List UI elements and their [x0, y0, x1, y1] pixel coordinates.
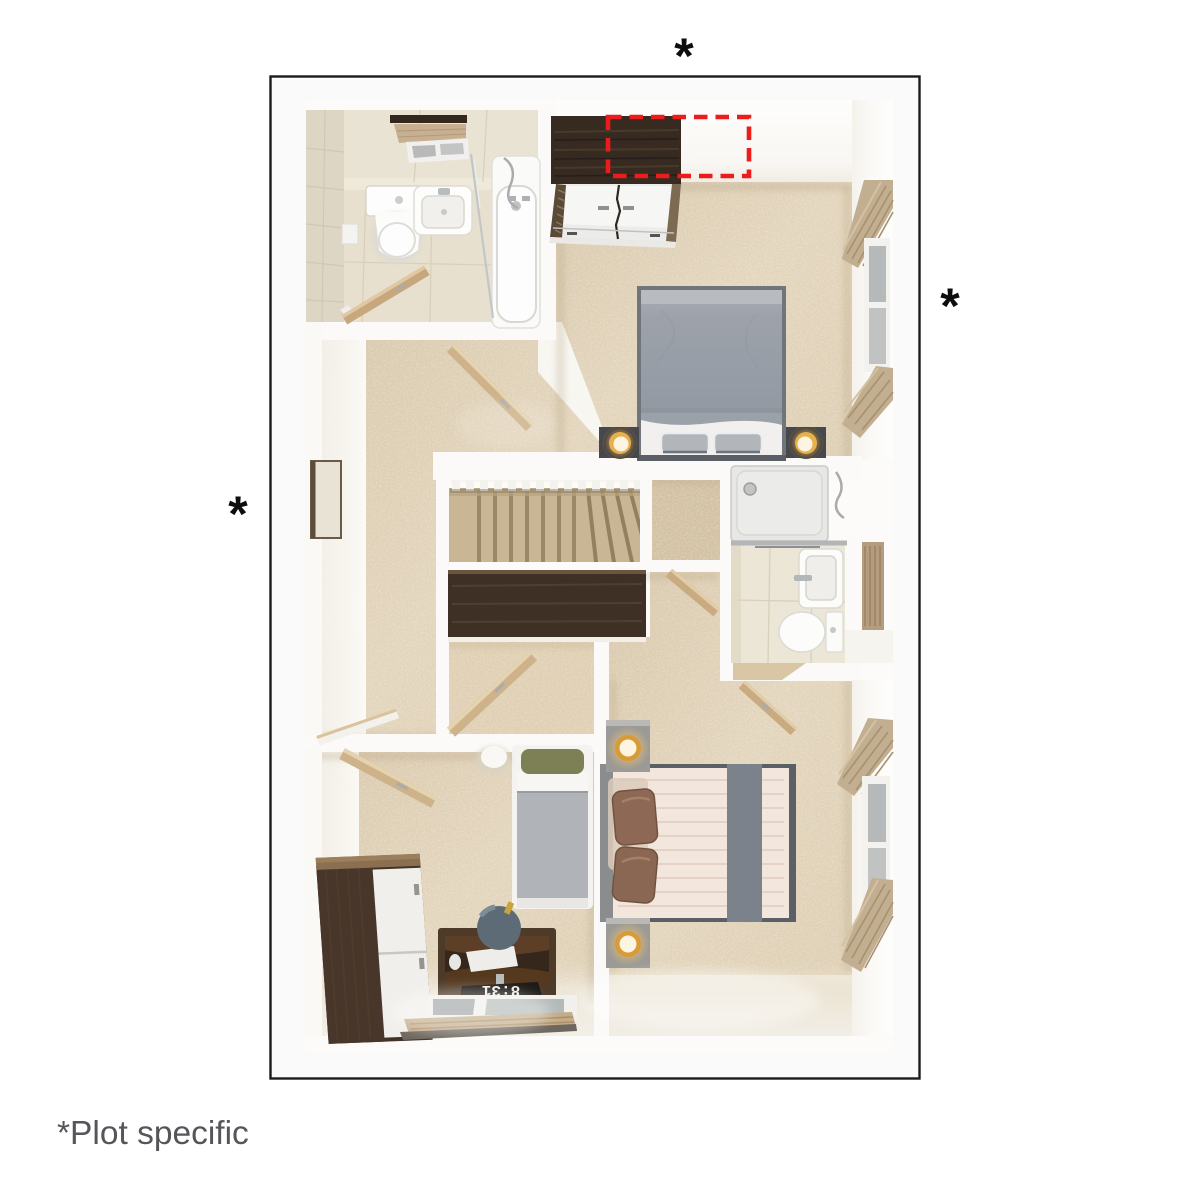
svg-text:*: *	[940, 278, 960, 334]
svg-text:*Plot specific: *Plot specific	[57, 1115, 249, 1152]
svg-text:*: *	[674, 28, 694, 84]
svg-text:*: *	[228, 486, 248, 542]
